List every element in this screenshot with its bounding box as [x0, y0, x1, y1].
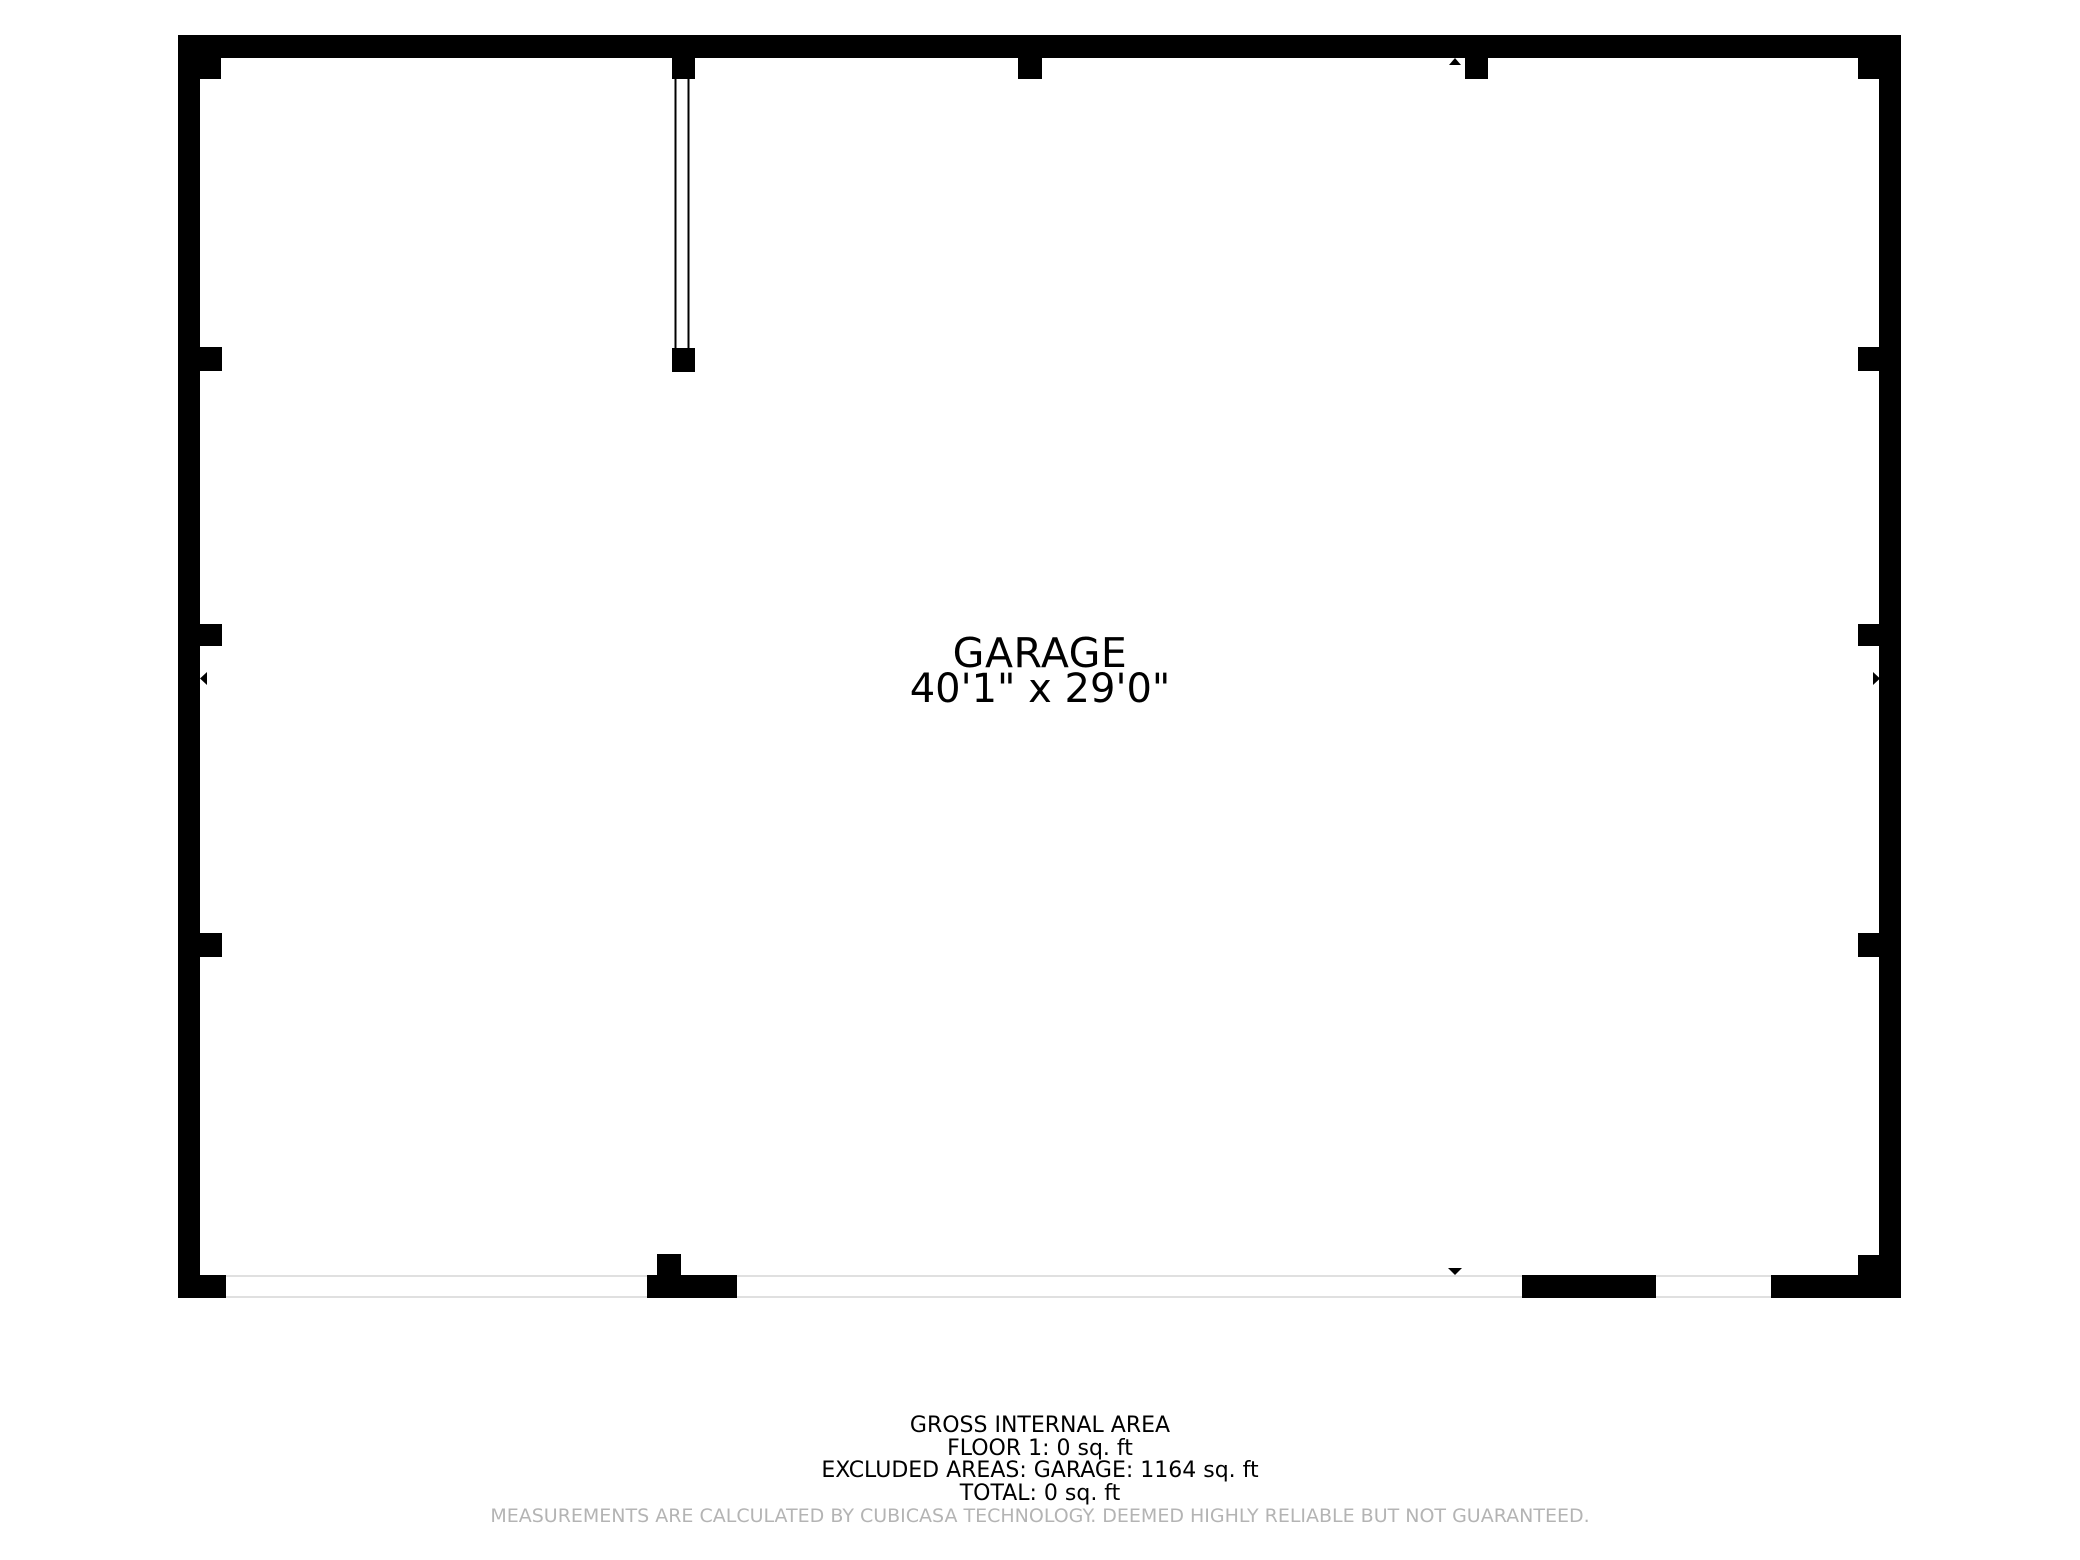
- top-wall-pier-1: [1018, 58, 1042, 79]
- bottom-wall-segment-2: [1522, 1275, 1656, 1298]
- top-wall-pier-2: [1465, 58, 1488, 79]
- top-right-corner-post: [1858, 35, 1901, 79]
- bottom-wall-segment-3: [1771, 1275, 1901, 1298]
- entry-arrow-down: [1448, 1268, 1462, 1275]
- entry-arrow-up: [1449, 58, 1461, 65]
- bottom-left-corner-post: [178, 1275, 226, 1298]
- room-label: GARAGE 40'1" x 29'0": [0, 635, 2080, 707]
- partition-top-post: [672, 58, 695, 79]
- right-wall-pier-3: [1858, 933, 1880, 957]
- floorplan-page: GARAGE 40'1" x 29'0" GROSS INTERNAL AREA…: [0, 0, 2080, 1560]
- room-dimensions: 40'1" x 29'0": [0, 671, 2080, 707]
- partition-end-post: [672, 348, 695, 372]
- top-left-corner-post: [178, 35, 221, 79]
- floor-plan: [0, 0, 2080, 1560]
- excluded-areas-line: EXCLUDED AREAS: GARAGE: 1164 sq. ft: [0, 1460, 2080, 1483]
- left-wall-pier-3: [200, 933, 222, 957]
- measurement-disclaimer: MEASUREMENTS ARE CALCULATED BY CUBICASA …: [0, 1505, 2080, 1528]
- bottom-right-corner-post: [1858, 1255, 1879, 1276]
- gross-internal-area-title: GROSS INTERNAL AREA: [0, 1415, 2080, 1438]
- bottom-wall-segment-1: [647, 1275, 737, 1298]
- left-wall-pier-1: [200, 347, 222, 371]
- area-summary: GROSS INTERNAL AREA FLOOR 1: 0 sq. ft EX…: [0, 1415, 2080, 1528]
- total-area-line: TOTAL: 0 sq. ft: [0, 1483, 2080, 1506]
- top-wall: [178, 35, 1901, 58]
- partition-wall-lines: [676, 79, 689, 348]
- right-wall-pier-1: [1858, 347, 1880, 371]
- bottom-wall-stub: [657, 1254, 681, 1275]
- floor1-area-line: FLOOR 1: 0 sq. ft: [0, 1438, 2080, 1461]
